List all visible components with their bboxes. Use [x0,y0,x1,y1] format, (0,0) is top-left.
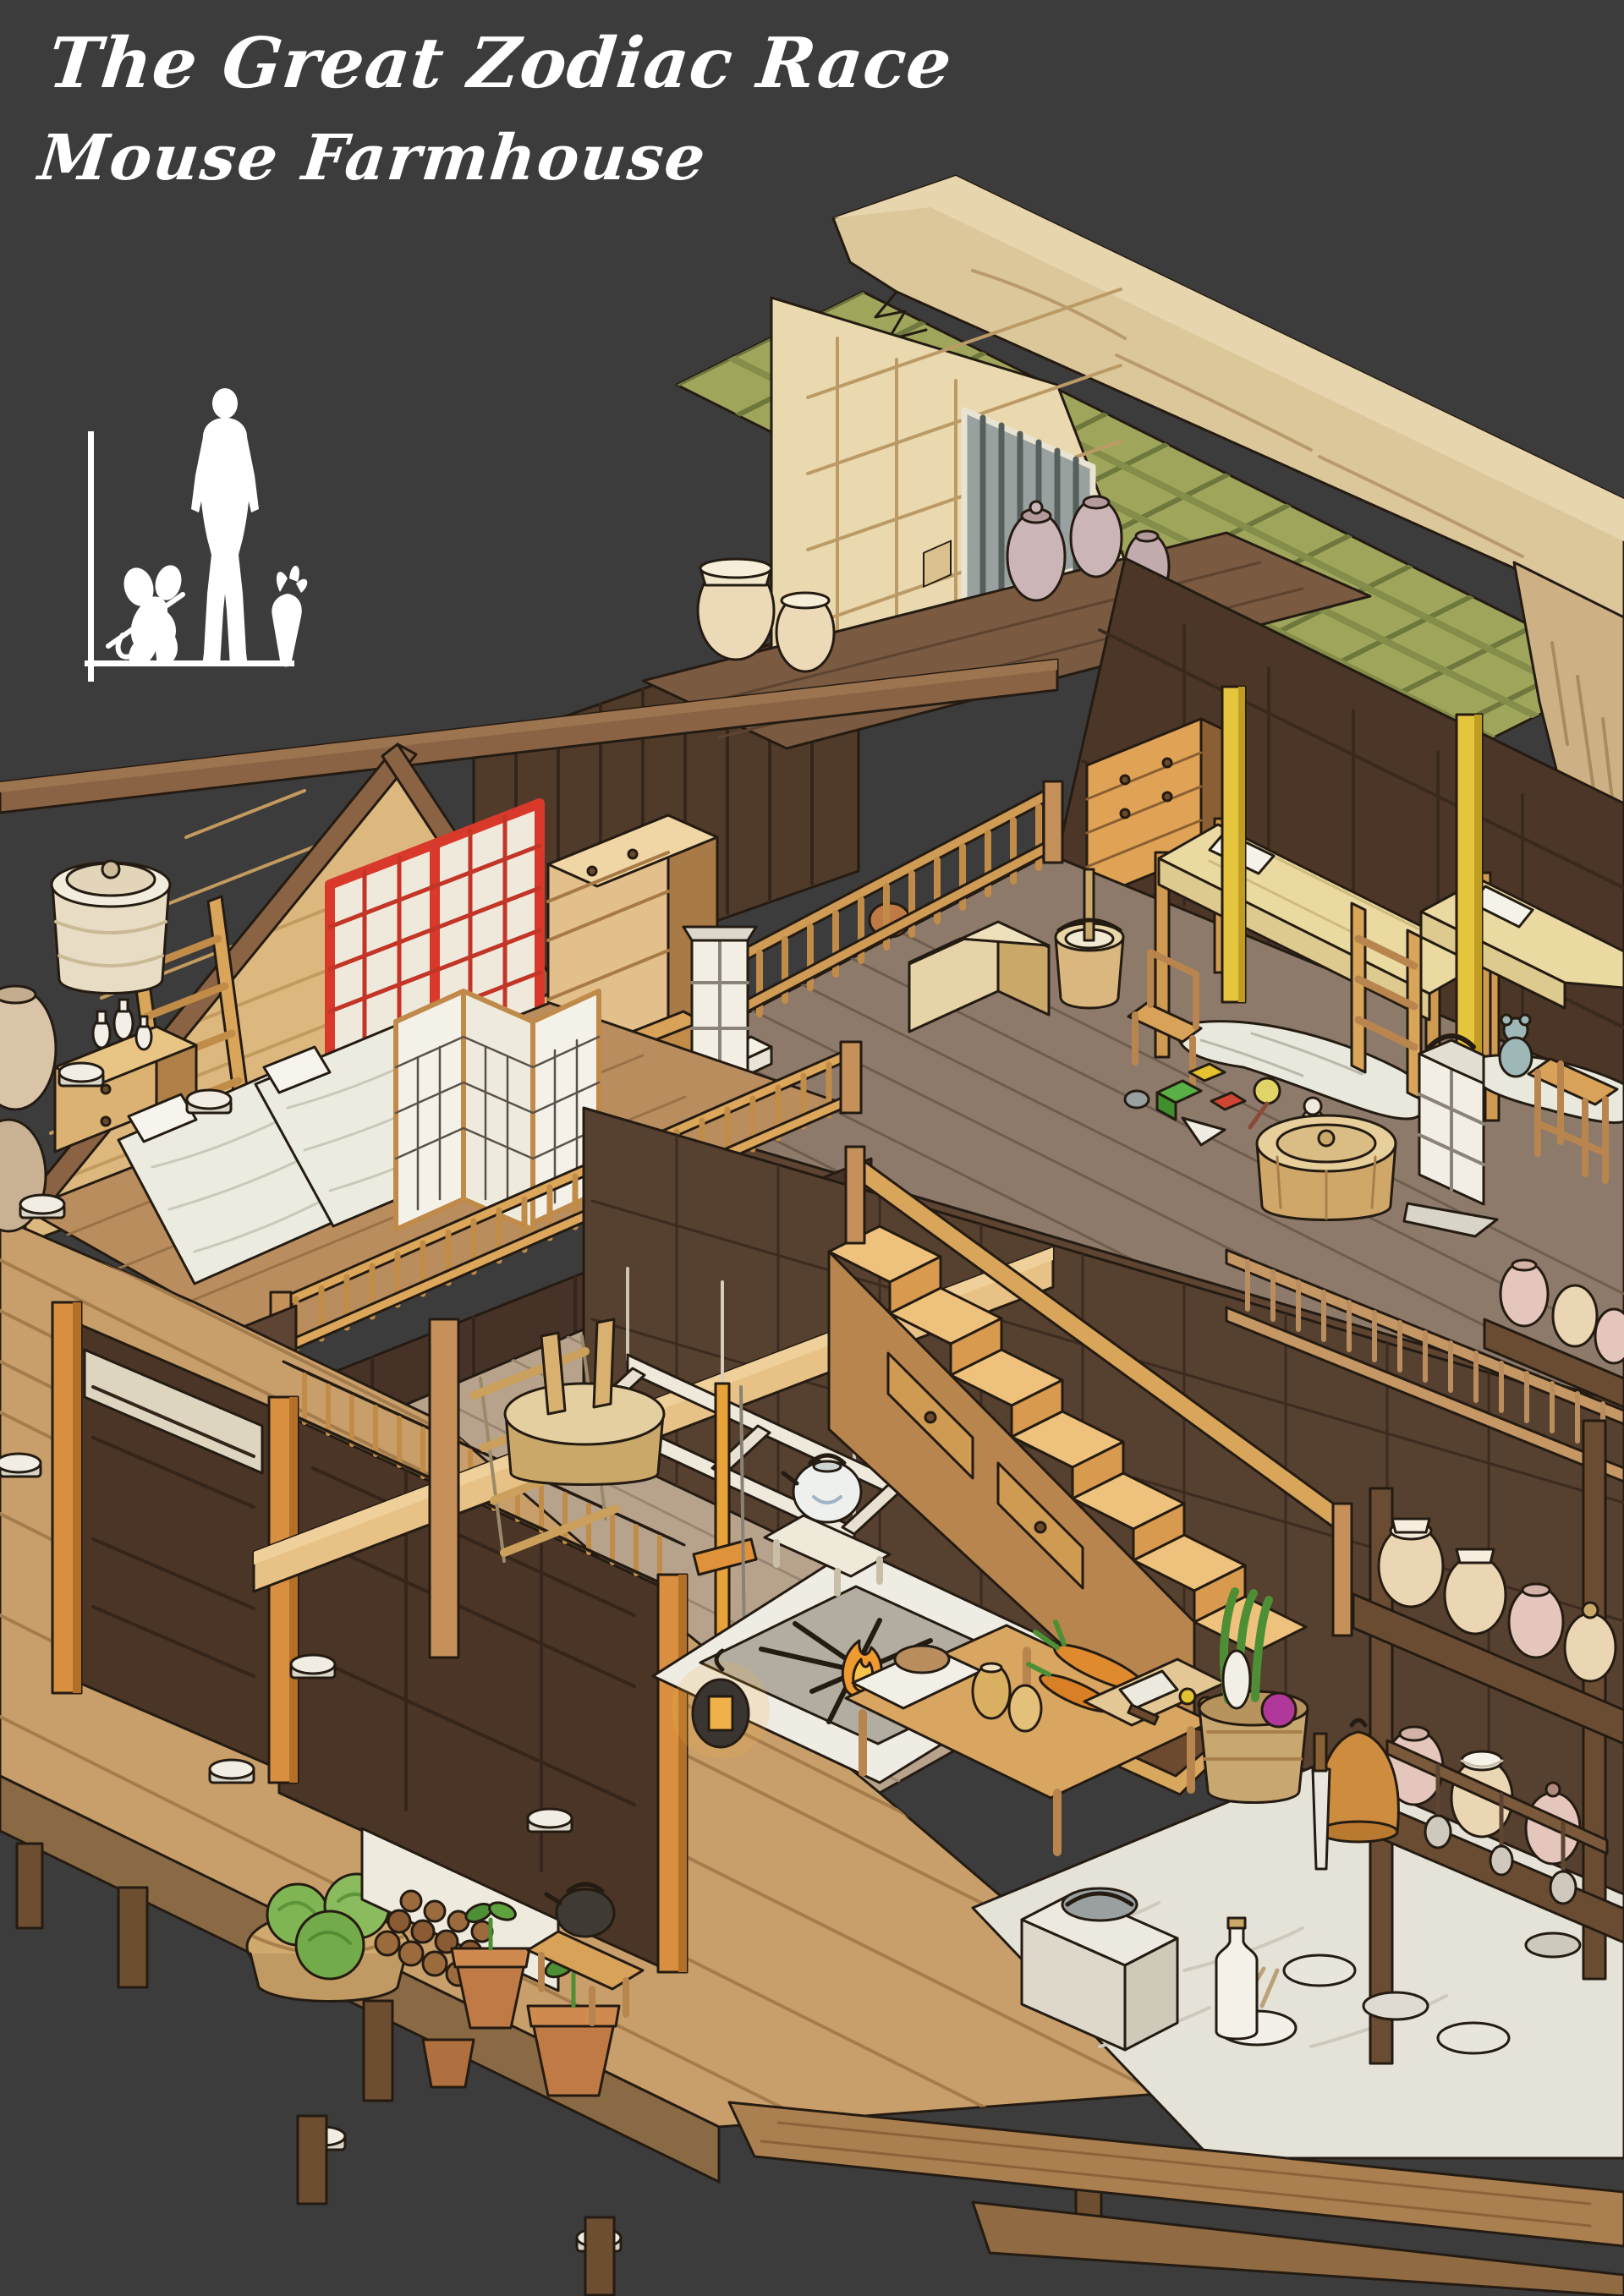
human-silhouette [191,388,259,666]
folding-screen [396,991,599,1230]
mouse-with-sword-silhouette [108,562,185,666]
bread-loaf [895,1646,949,1673]
scale-diagram [85,388,307,682]
scale-axis-vertical [88,431,94,682]
scale-axis-baseline [85,660,294,666]
storage-barrel [52,861,170,994]
farmhouse-illustration [0,0,1624,2296]
carrot-silhouette [272,566,307,666]
hanging-knife [1313,1734,1330,1869]
poster-canvas: { "title": { "line1": "The Great Zodiac … [0,0,1624,2296]
teddy-bear-toy [1500,1015,1532,1077]
wooden-tub [1257,1115,1396,1220]
